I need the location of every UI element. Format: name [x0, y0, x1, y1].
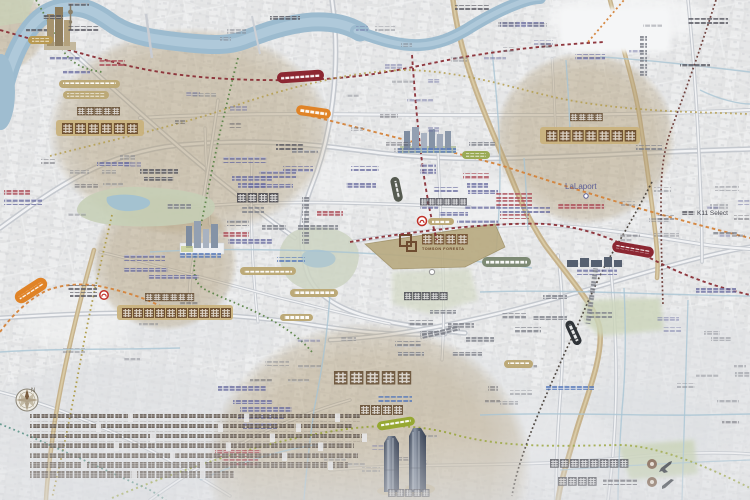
- svg-text:LaLaport: LaLaport: [565, 182, 597, 191]
- svg-text:K11 Select: K11 Select: [697, 210, 728, 217]
- svg-text:TOMSON FORESTA: TOMSON FORESTA: [422, 247, 465, 251]
- svg-text:N: N: [31, 388, 35, 394]
